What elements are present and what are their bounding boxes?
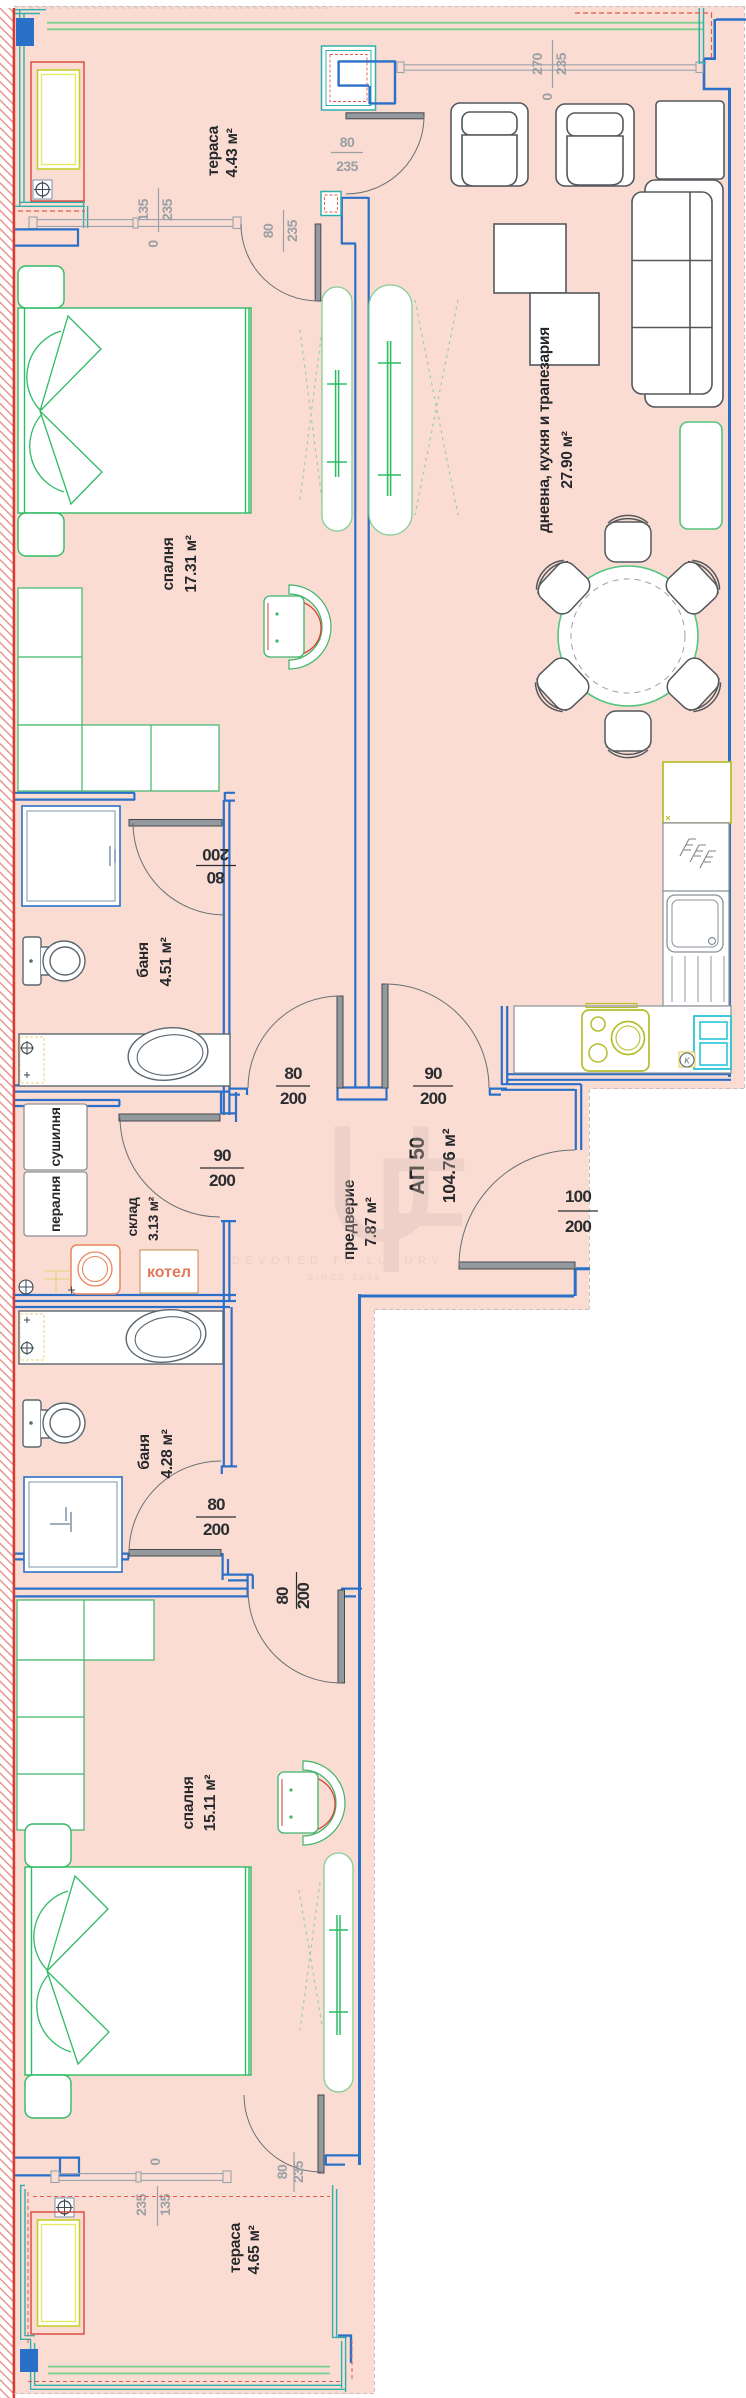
svg-text:4.65 м²: 4.65 м² — [246, 2225, 263, 2274]
svg-text:80: 80 — [260, 223, 276, 238]
svg-text:80: 80 — [284, 1064, 302, 1083]
svg-text:235: 235 — [290, 2160, 306, 2183]
svg-text:80: 80 — [340, 134, 355, 150]
svg-text:0: 0 — [539, 93, 555, 101]
svg-text:4.28 м²: 4.28 м² — [159, 1429, 176, 1478]
svg-text:спалня: спалня — [160, 537, 177, 590]
svg-text:K: K — [684, 1057, 690, 1066]
svg-text:17.31 м²: 17.31 м² — [183, 535, 200, 592]
svg-text:DEVOTED TO LUXURY: DEVOTED TO LUXURY — [232, 1255, 444, 1267]
svg-text:80: 80 — [273, 1587, 292, 1605]
svg-text:200: 200 — [280, 1089, 306, 1108]
svg-text:спалня: спалня — [180, 1776, 197, 1829]
svg-text:235: 235 — [159, 198, 175, 221]
svg-text:0: 0 — [147, 2158, 163, 2166]
svg-text:200: 200 — [203, 845, 229, 864]
svg-text:80: 80 — [207, 1495, 225, 1514]
svg-text:27.90 м²: 27.90 м² — [559, 431, 576, 488]
svg-text:баня: баня — [136, 1434, 153, 1469]
svg-text:235: 235 — [336, 158, 359, 174]
svg-text:200: 200 — [209, 1171, 235, 1190]
svg-text:дневна, кухня и трапезария: дневна, кухня и трапезария — [536, 327, 553, 533]
svg-text:80: 80 — [207, 868, 225, 887]
svg-text:200: 200 — [565, 1217, 591, 1236]
svg-text:270: 270 — [529, 52, 545, 75]
svg-text:SINCE 2008: SINCE 2008 — [308, 1273, 382, 1282]
svg-text:200: 200 — [203, 1520, 229, 1539]
svg-text:F: F — [370, 1123, 471, 1307]
svg-text:склад: склад — [124, 1197, 140, 1236]
svg-text:80: 80 — [274, 2164, 290, 2179]
svg-text:15.11 м²: 15.11 м² — [202, 1775, 219, 1832]
svg-text:баня: баня — [135, 942, 152, 977]
svg-text:4.43 м²: 4.43 м² — [224, 128, 241, 177]
svg-text:90: 90 — [424, 1064, 442, 1083]
svg-text:тераса: тераса — [227, 2222, 244, 2273]
svg-text:235: 235 — [553, 52, 569, 75]
svg-text:тераса: тераса — [205, 125, 222, 176]
svg-text:235: 235 — [284, 219, 300, 242]
svg-text:котел: котел — [147, 1264, 191, 1281]
svg-text:135: 135 — [135, 198, 151, 221]
svg-text:0: 0 — [145, 240, 161, 248]
svg-text:сушилня: сушилня — [47, 1107, 63, 1166]
svg-text:90: 90 — [213, 1146, 231, 1165]
svg-text:пералня: пералня — [47, 1176, 63, 1232]
svg-text:4.51 м²: 4.51 м² — [158, 937, 175, 986]
svg-text:3.13 м²: 3.13 м² — [145, 1196, 161, 1241]
svg-text:100: 100 — [565, 1187, 591, 1206]
